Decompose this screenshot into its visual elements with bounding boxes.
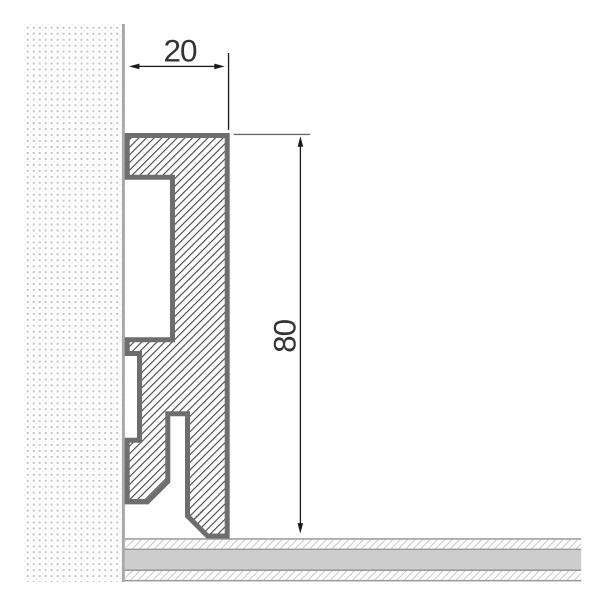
svg-text:20: 20 [163, 32, 197, 68]
svg-text:80: 80 [266, 319, 302, 353]
